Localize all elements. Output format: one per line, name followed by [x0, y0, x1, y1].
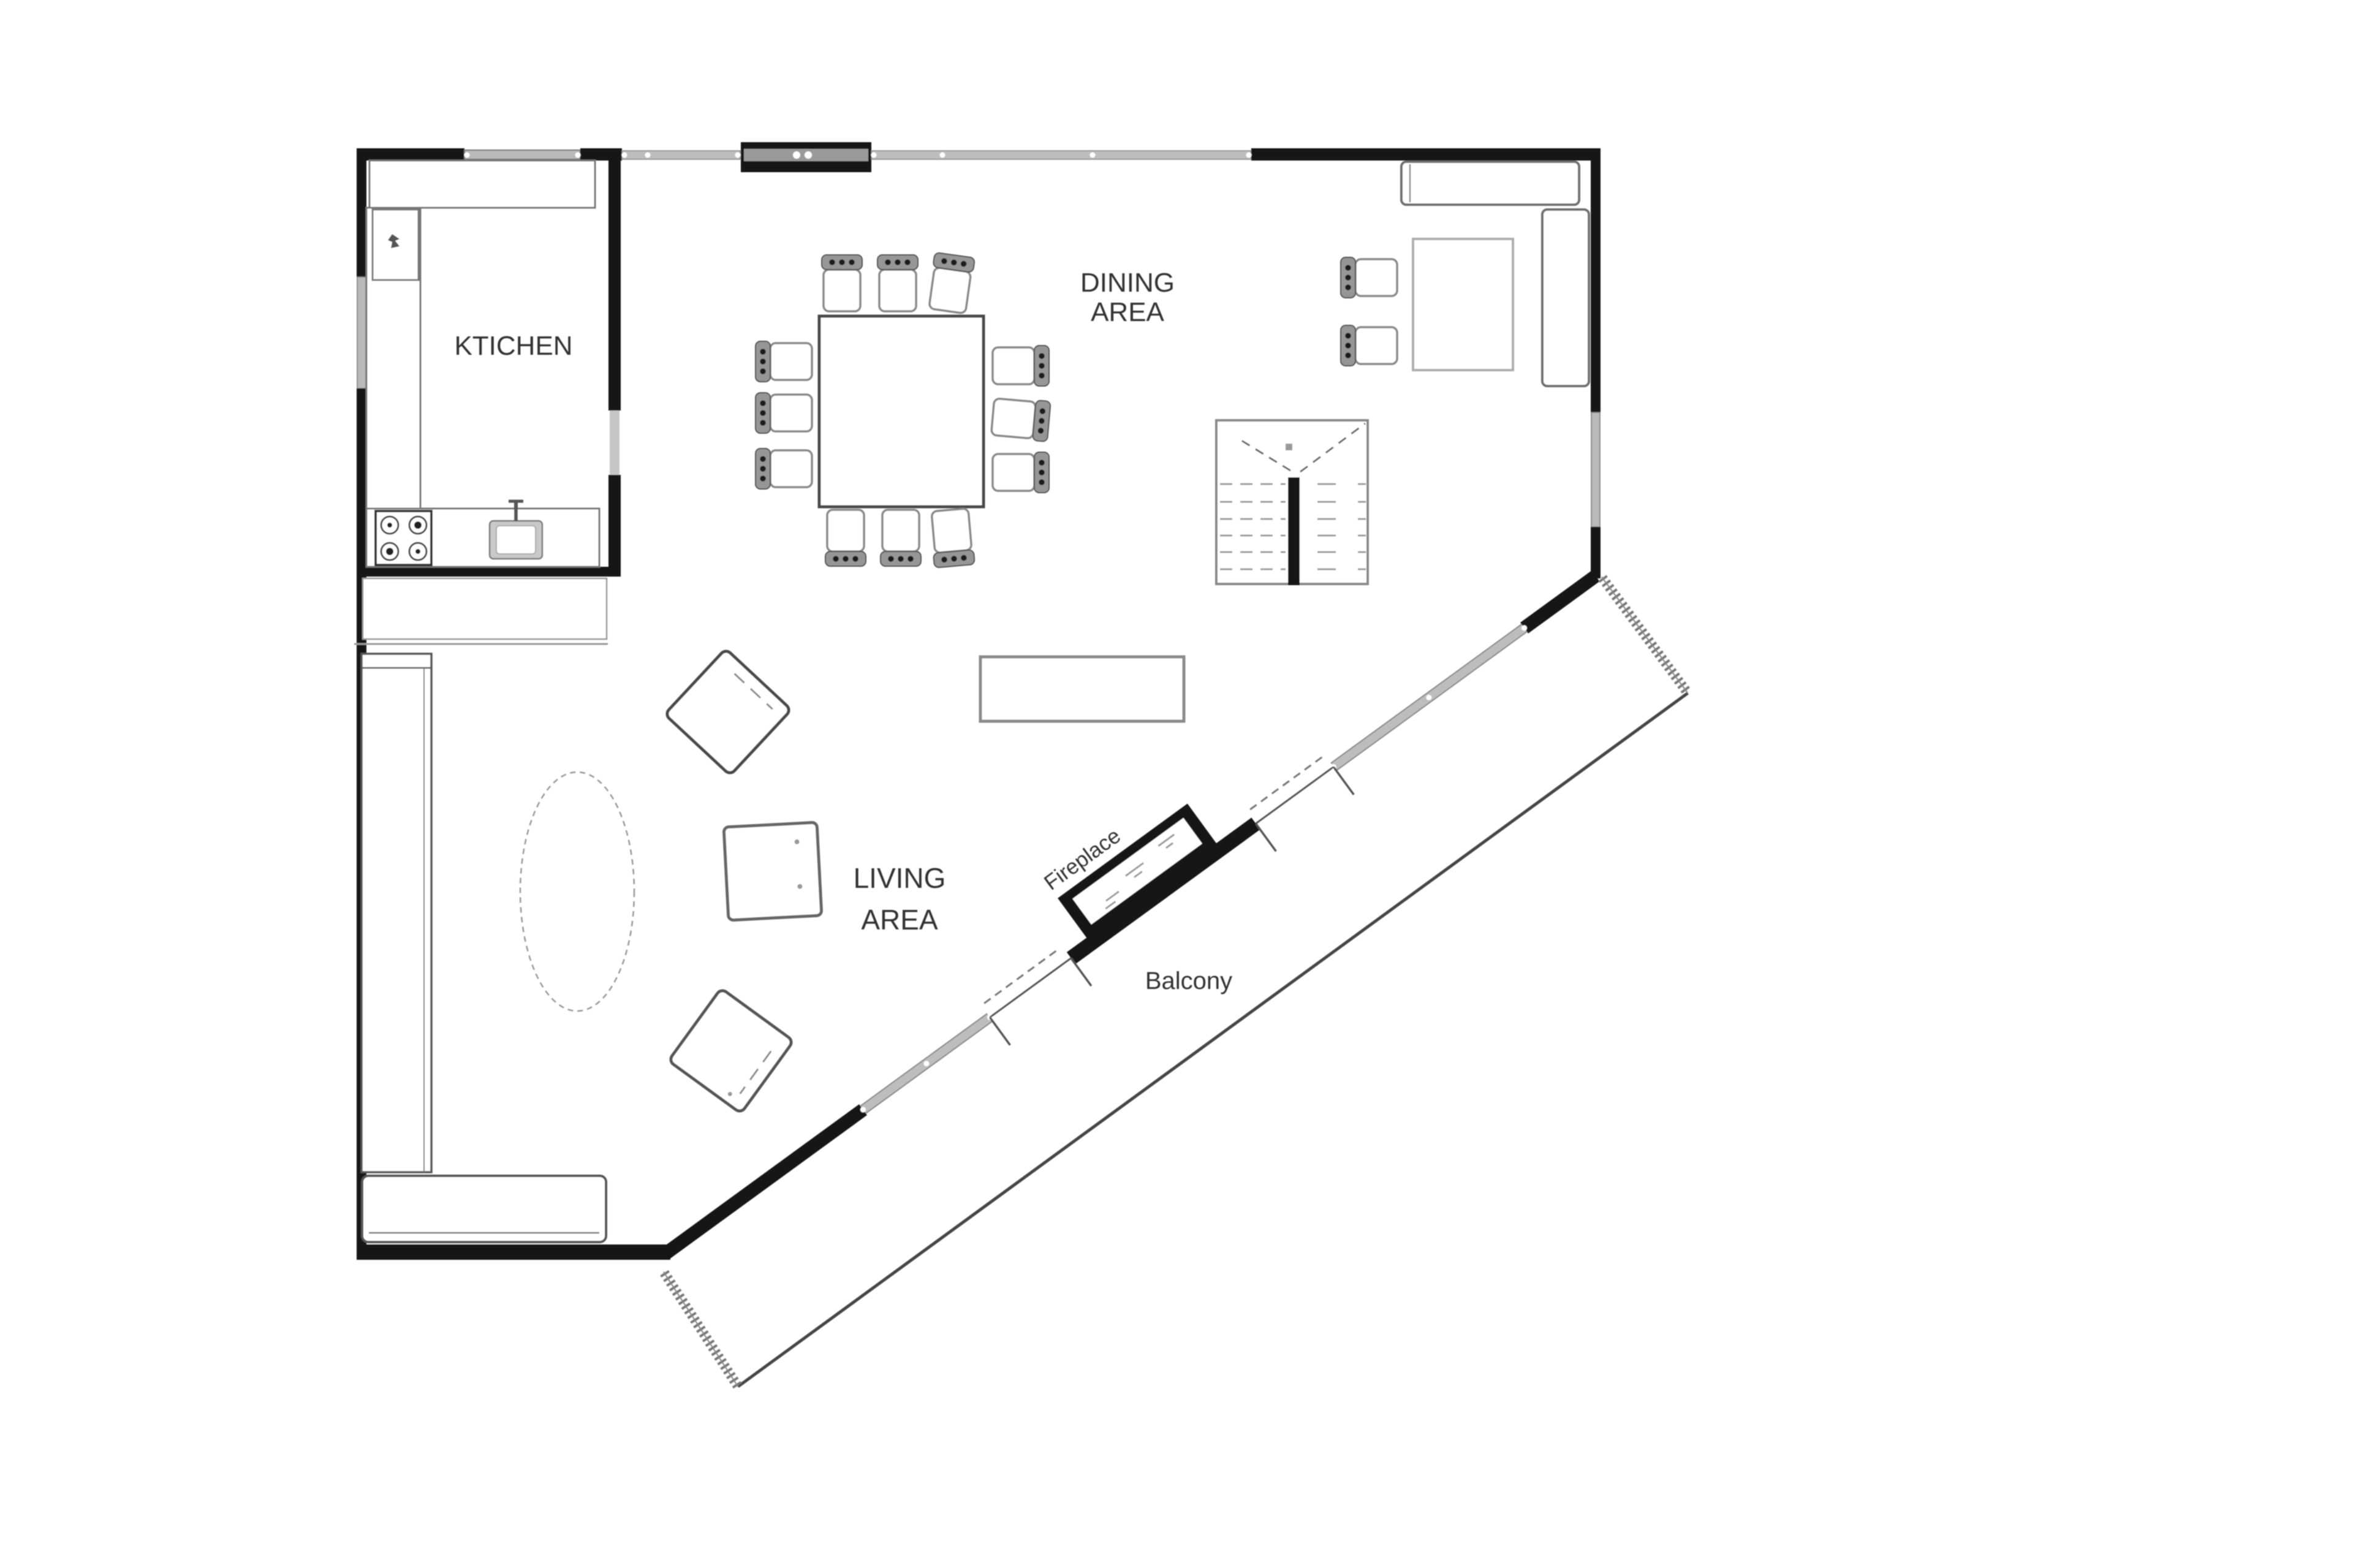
svg-text:KTICHEN: KTICHEN: [454, 331, 572, 361]
svg-text:Balcony: Balcony: [1145, 968, 1232, 994]
svg-text:AREA: AREA: [1091, 297, 1164, 327]
svg-text:LIVING: LIVING: [854, 862, 946, 894]
svg-text:DINING: DINING: [1080, 268, 1175, 298]
svg-text:AREA: AREA: [861, 904, 938, 936]
